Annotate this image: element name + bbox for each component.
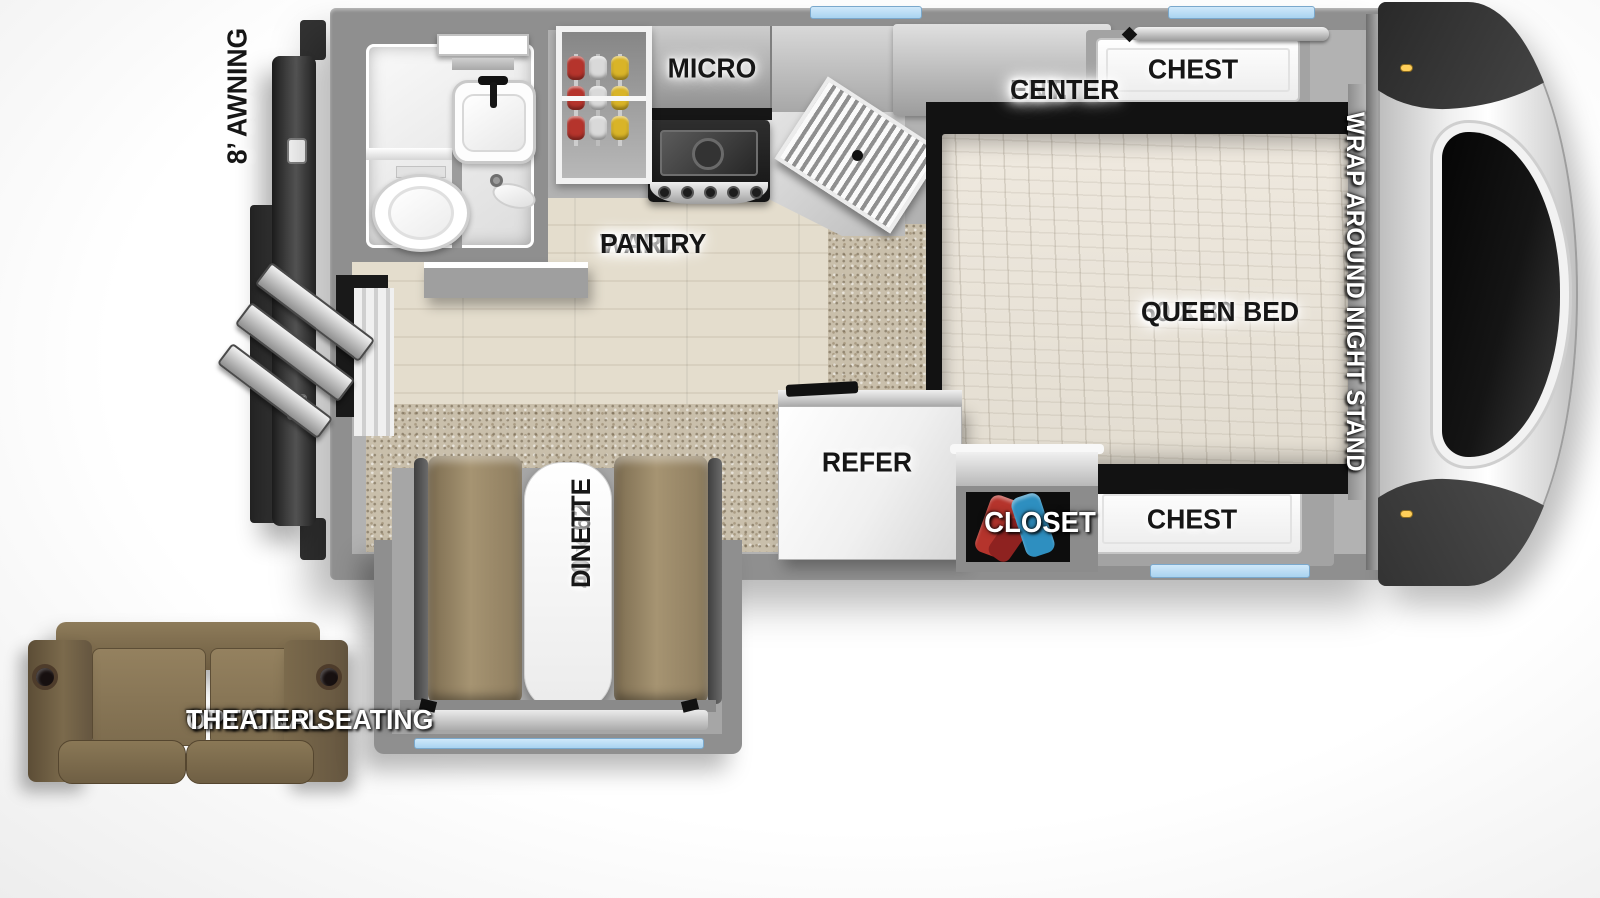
slide-out-step: [408, 710, 708, 730]
toilet-seat: [388, 186, 454, 240]
dinette-bench-bar-left: [414, 458, 428, 704]
nose-window: [1442, 132, 1560, 457]
dinette-label-line2: DINETTE: [566, 478, 596, 588]
stove-knob-1: [658, 186, 671, 199]
refer-label: REFER: [822, 446, 912, 477]
awning-end-cap-top: [300, 20, 326, 60]
closet-lid: [956, 452, 1098, 488]
stove-knob-5: [750, 186, 763, 199]
awning-latch-top: [287, 138, 307, 164]
clearance-light-top-icon: [1400, 64, 1413, 72]
grab-rail: [1133, 27, 1329, 41]
micro-label: MICRO: [668, 52, 757, 83]
sofa-seat-right: [186, 740, 314, 784]
ward-pantry-label-line2: PANTRY: [600, 228, 706, 259]
nose-cap: [1378, 2, 1578, 586]
ent-center-label-line2: CENTER: [1010, 74, 1119, 105]
theater-sofa: [28, 620, 348, 786]
entry-landing: [354, 288, 394, 436]
night-stand-label: WRAP AROUND NIGHT STAND: [1341, 112, 1369, 472]
window-top-right: [1168, 6, 1315, 19]
closet-label: CLOSET: [984, 507, 1096, 539]
dinette-bench-left: [428, 456, 522, 704]
pantry-rod: [562, 96, 646, 101]
floorplan-canvas: 8’ AWNING MICRO WARD PANTRY ENT. CENTER …: [0, 0, 1600, 898]
theater-seating-label-line2: THEATER SEATING: [186, 704, 433, 735]
sofa-cupholder-right-icon: [316, 664, 342, 690]
oven-dial-icon: [692, 138, 724, 170]
entry-cabinet: [424, 262, 588, 298]
sink-drain-icon: [852, 150, 863, 161]
window-slide-out: [414, 738, 704, 749]
medicine-cabinet: [437, 34, 529, 56]
awning-label: 8’ AWNING: [221, 28, 252, 164]
nose-bottom-cap: [1378, 474, 1578, 586]
bed-frame-top: [928, 102, 1350, 138]
faucet-spout-icon: [490, 82, 497, 108]
chest-bottom-label: CHEST: [1147, 503, 1237, 534]
stove-knob-4: [727, 186, 740, 199]
shower-drain-icon: [490, 174, 503, 187]
window-top-left: [810, 6, 922, 19]
clearance-light-bottom-icon: [1400, 510, 1413, 518]
queen-bed-label-line2: QUEEN BED: [1141, 296, 1299, 327]
microwave-vent: [652, 108, 772, 120]
sofa-seat-left: [58, 740, 186, 784]
stove-knob-3: [704, 186, 717, 199]
stove-knob-2: [681, 186, 694, 199]
nose-top-cap: [1378, 2, 1578, 114]
dinette-bench-bar-right: [708, 458, 722, 704]
refrigerator: [778, 406, 962, 560]
sofa-cupholder-left-icon: [32, 664, 58, 690]
dinette-bench-right: [614, 456, 708, 704]
window-bottom-right: [1150, 564, 1310, 578]
bathroom-vent: [452, 58, 514, 70]
bathroom-counter: [366, 148, 458, 160]
chest-top-label: CHEST: [1148, 53, 1238, 84]
